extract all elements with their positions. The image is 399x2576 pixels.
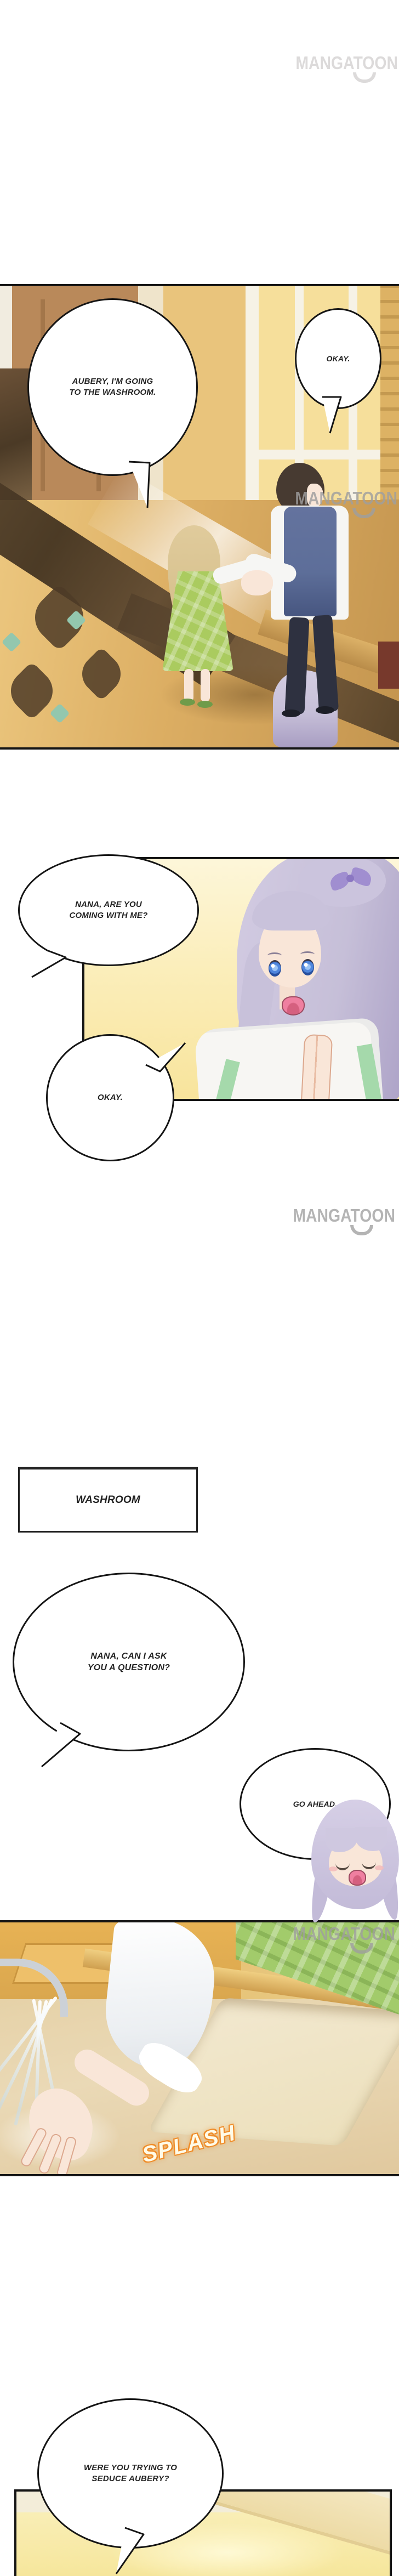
mangatoon-watermark-top: MANGATOON xyxy=(279,53,398,83)
chibi-open-mouth xyxy=(349,1870,366,1886)
chibi-blush xyxy=(329,1866,338,1871)
nana-eyebrow xyxy=(300,951,315,957)
dark-wood-furniture xyxy=(378,642,399,689)
speech-text: SEDUCE AUBERY? xyxy=(92,2473,169,2484)
speech-text: AUBERY, I'M GOING xyxy=(72,376,153,387)
girl-leg xyxy=(201,669,210,702)
gold-wallpaper xyxy=(380,286,399,503)
mangatoon-watermark-text: MANGATOON xyxy=(293,1205,395,1226)
bubble-tail xyxy=(318,396,345,435)
nana-eye xyxy=(301,959,314,975)
bubble-tail xyxy=(36,1720,86,1770)
girl-shoe xyxy=(197,701,213,708)
speech-text: OKAY. xyxy=(326,354,350,364)
aubery-shoe xyxy=(282,710,300,717)
speech-bubble-okay-hall: OKAY. xyxy=(295,308,381,409)
speech-text: TO THE WASHROOM. xyxy=(70,387,156,398)
mangatoon-watermark: MANGATOON xyxy=(276,1205,395,1235)
speech-text: OKAY. xyxy=(98,1092,123,1103)
speech-text: COMING WITH ME? xyxy=(70,910,148,921)
nana-eyebrow xyxy=(267,952,282,958)
speech-text: NANA, CAN I ASK xyxy=(90,1650,167,1662)
nana-eye xyxy=(269,960,281,977)
bubble-tail xyxy=(144,1041,187,1074)
smile-icon xyxy=(353,72,376,83)
window-frame xyxy=(259,450,399,459)
bubble-tail xyxy=(123,459,162,510)
aubery-shoe xyxy=(316,706,334,714)
speech-text: WERE YOU TRYING TO xyxy=(84,2462,177,2473)
panel-washbasin: SPLASH xyxy=(0,1920,399,2176)
bubble-tail xyxy=(29,950,68,980)
bubble-tail xyxy=(107,2526,147,2576)
purple-bow-knot xyxy=(346,875,354,882)
washroom-sign-text: WASHROOM xyxy=(76,1493,140,1507)
speech-bubble-aubery-going: AUBERY, I'M GOING TO THE WASHROOM. xyxy=(27,298,198,476)
washroom-sign-box: WASHROOM xyxy=(18,1467,198,1533)
nana-open-mouth xyxy=(282,996,305,1015)
mangatoon-watermark-text: MANGATOON xyxy=(295,53,398,73)
smile-icon xyxy=(350,1225,373,1235)
girl-shoe xyxy=(180,699,195,706)
girl-leg xyxy=(184,669,193,702)
chibi-nana xyxy=(311,1800,399,1919)
aubery-face xyxy=(307,484,323,507)
nana-hands-together xyxy=(301,1034,333,1101)
aubery-vest xyxy=(284,507,337,616)
chibi-blush xyxy=(375,1865,384,1870)
speech-text: YOU A QUESTION? xyxy=(88,1662,170,1673)
speech-text: NANA, ARE YOU xyxy=(75,899,142,910)
manga-page: MANGATOON xyxy=(0,0,399,2576)
holding-hands xyxy=(241,570,273,595)
